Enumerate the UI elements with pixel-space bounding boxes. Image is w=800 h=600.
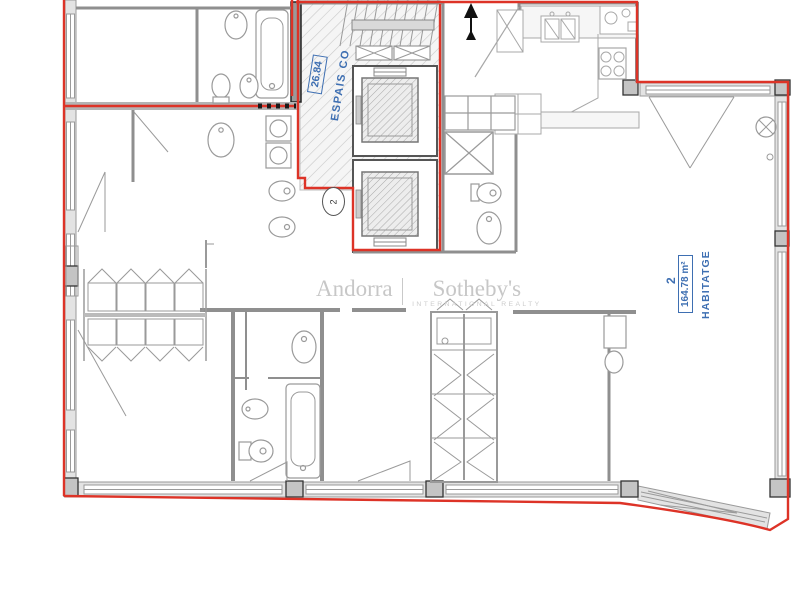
wc-fixtures xyxy=(604,316,626,373)
bathroom3-fixtures xyxy=(239,331,320,478)
wardrobe-center xyxy=(431,299,497,482)
elevator-shafts xyxy=(353,66,437,252)
bathroom4-fixtures xyxy=(445,96,515,244)
watermark-subtitle: INTERNATIONAL REALTY xyxy=(412,301,541,308)
watermark: Andorra Sotheby's INTERNATIONAL REALTY xyxy=(316,276,542,308)
watermark-left-text: Andorra xyxy=(316,276,393,302)
unit-number-circle-text: 2 xyxy=(328,199,338,204)
watermark-right-text: Sotheby's xyxy=(433,276,522,301)
bathroom2-fixtures xyxy=(134,112,295,237)
dwelling-area-label: 164.78 m² xyxy=(678,255,693,313)
bathroom1-fixtures xyxy=(212,10,288,103)
unit-number-circle: 2 xyxy=(322,187,345,216)
wardrobe-left xyxy=(66,240,214,361)
entrance-arrow xyxy=(464,3,478,40)
floor-plan-canvas: 26.84 ESPAIS CO 2 2 164.78 m² HABITATGE … xyxy=(0,0,800,600)
dwelling-name-label: HABITATGE xyxy=(700,250,712,319)
dwelling-number-label: 2 xyxy=(664,277,678,284)
watermark-divider xyxy=(402,278,404,305)
